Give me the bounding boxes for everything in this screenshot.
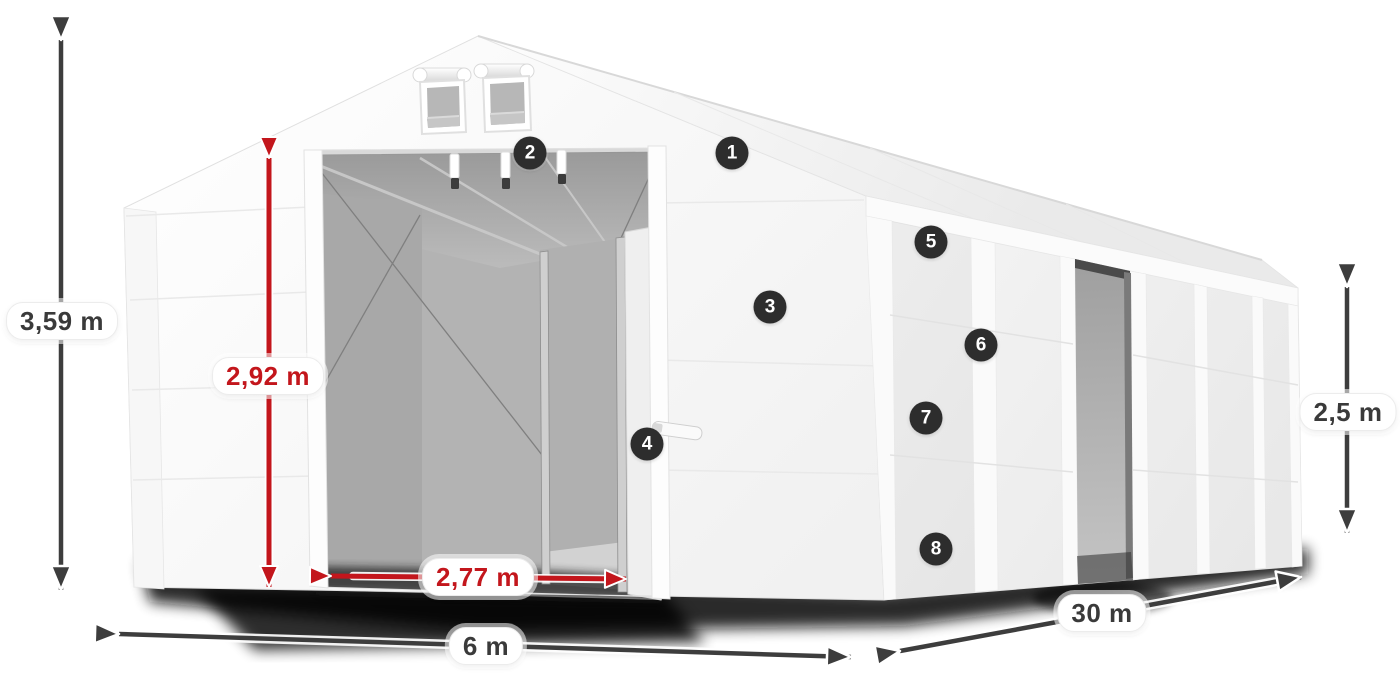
feature-marker-2: 2 [514,137,547,170]
tent-illustration [0,0,1400,700]
feature-marker-7: 7 [910,402,943,435]
feature-marker-1: 1 [716,137,749,170]
total-height-label: 3,59 m [6,302,118,340]
tent-dimension-diagram: 3,59 m 2,92 m 2,77 m 6 m 30 m 2,5 m 1 2 … [0,0,1400,700]
entrance-height-label: 2,92 m [212,357,324,395]
rear-doorway [540,238,624,592]
side-door-opening [1075,259,1133,584]
entrance-right-edge [648,146,670,599]
feature-marker-6: 6 [965,329,998,362]
entrance-width-label: 2,77 m [422,558,534,596]
feature-marker-8: 8 [920,533,953,566]
side-height-label: 2,5 m [1300,393,1397,431]
feature-marker-5: 5 [915,226,948,259]
frame-pole [540,251,550,584]
feature-marker-3: 3 [754,291,787,324]
span-width-label: 6 m [449,627,523,665]
vent-left [413,68,471,134]
length-label: 30 m [1057,594,1146,632]
feature-marker-4: 4 [631,428,664,461]
tent-interior [308,144,662,600]
